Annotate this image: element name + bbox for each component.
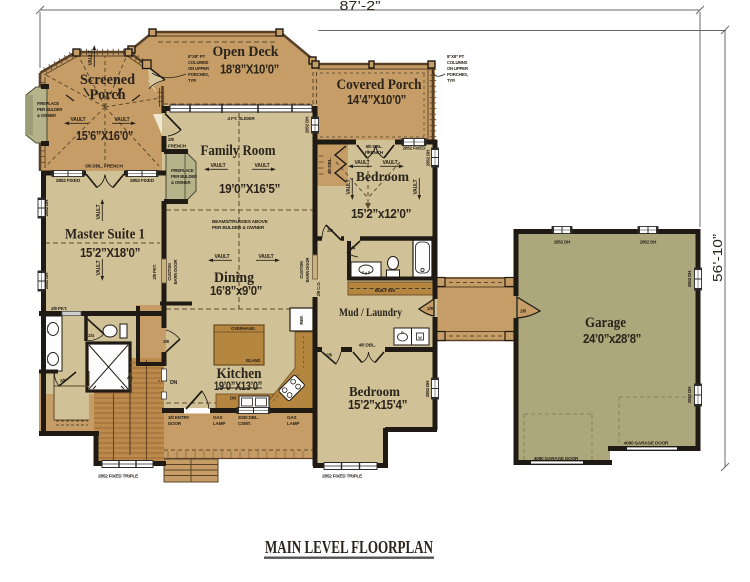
svg-text:DN: DN <box>230 396 236 401</box>
svg-text:GAS: GAS <box>213 415 222 420</box>
svg-text:Bedroom: Bedroom <box>356 170 409 185</box>
svg-text:3/0 ENTRY: 3/0 ENTRY <box>168 415 189 420</box>
svg-text:2852 FIXED: 2852 FIXED <box>403 146 426 151</box>
svg-text:COLUMNS: COLUMNS <box>447 60 468 65</box>
svg-text:ON UPPER: ON UPPER <box>188 66 210 71</box>
svg-text:PORCHES,: PORCHES, <box>447 72 468 77</box>
svg-text:VAULT: VAULT <box>383 160 398 166</box>
svg-text:2030 DBL.: 2030 DBL. <box>238 415 258 420</box>
svg-text:BARN DOOR: BARN DOOR <box>305 257 310 283</box>
svg-text:2/8: 2/8 <box>327 228 333 233</box>
svg-text:VAULT: VAULT <box>115 117 130 123</box>
svg-text:PER BULDER & OWNER: PER BULDER & OWNER <box>212 225 265 231</box>
svg-text:2/8: 2/8 <box>520 309 526 314</box>
svg-text:Mud / Laundry: Mud / Laundry <box>339 307 402 319</box>
svg-text:2852 DH: 2852 DH <box>44 273 49 289</box>
svg-text:Family Room: Family Room <box>201 143 276 159</box>
svg-text:& OWNER: & OWNER <box>171 180 191 185</box>
svg-text:BUILT INS: BUILT INS <box>375 288 395 293</box>
svg-text:BEAMS/TRUSSES ABOVE: BEAMS/TRUSSES ABOVE <box>212 219 269 225</box>
svg-text:2/8: 2/8 <box>168 137 174 142</box>
svg-text:PORCHES,: PORCHES, <box>188 72 209 77</box>
svg-text:2852 DH: 2852 DH <box>687 387 692 403</box>
svg-text:BARN DOOR: BARN DOOR <box>173 259 178 285</box>
svg-text:VAULT: VAULT <box>88 50 94 65</box>
svg-text:2/8: 2/8 <box>163 339 169 344</box>
svg-text:LAMP: LAMP <box>213 421 225 426</box>
svg-text:2852 FIXED TRIPLE: 2852 FIXED TRIPLE <box>98 474 138 479</box>
svg-text:GAS: GAS <box>287 415 296 420</box>
svg-text:2852 DH: 2852 DH <box>640 240 656 245</box>
svg-text:8”X8” PT: 8”X8” PT <box>447 54 465 59</box>
svg-text:14’4”X10’0”: 14’4”X10’0” <box>347 93 406 107</box>
svg-text:2852 DH: 2852 DH <box>44 200 49 216</box>
svg-text:VAULT: VAULT <box>413 179 419 194</box>
svg-text:Covered Porch: Covered Porch <box>337 77 423 93</box>
svg-text:ISLAND: ISLAND <box>246 358 261 363</box>
svg-text:5/0 DBL. FRENCH: 5/0 DBL. FRENCH <box>85 164 123 170</box>
svg-text:87’-2”: 87’-2” <box>340 0 381 13</box>
svg-text:VAULT: VAULT <box>259 254 274 260</box>
svg-text:2852 DH: 2852 DH <box>425 381 430 397</box>
svg-text:4080 GARAGE DOOR: 4080 GARAGE DOOR <box>534 456 579 461</box>
svg-text:CSMT.: CSMT. <box>238 421 251 426</box>
svg-text:4 FT. SLIDER: 4 FT. SLIDER <box>227 116 255 122</box>
svg-text:VAULT: VAULT <box>255 163 270 169</box>
svg-text:VAULT: VAULT <box>215 254 230 260</box>
svg-text:2/8 PKT.: 2/8 PKT. <box>51 306 67 311</box>
svg-text:LAMP: LAMP <box>287 421 299 426</box>
svg-text:2852 FIXED TRIPLE: 2852 FIXED TRIPLE <box>322 474 362 479</box>
svg-text:2852 FIXED: 2852 FIXED <box>130 178 155 184</box>
svg-text:18’8”X10’0”: 18’8”X10’0” <box>220 63 279 77</box>
svg-text:DN: DN <box>170 380 178 386</box>
svg-text:Screened: Screened <box>80 72 136 88</box>
svg-text:TYP.: TYP. <box>188 78 196 83</box>
svg-text:VAULT: VAULT <box>355 160 370 166</box>
svg-text:15’2”X18’0”: 15’2”X18’0” <box>80 246 140 260</box>
svg-text:TYP.: TYP. <box>447 78 455 83</box>
svg-text:4/0 DBL.: 4/0 DBL. <box>327 158 332 175</box>
svg-text:5/0 DBL.: 5/0 DBL. <box>366 144 383 149</box>
svg-text:2852 DH: 2852 DH <box>426 150 431 166</box>
svg-text:VAULT: VAULT <box>96 204 102 219</box>
svg-text:Garage: Garage <box>585 315 626 331</box>
svg-text:16’8”x9’0”: 16’8”x9’0” <box>210 284 262 298</box>
svg-text:FIREPLACE: FIREPLACE <box>171 168 194 173</box>
svg-text:8”X8” PT: 8”X8” PT <box>188 54 206 59</box>
svg-text:2852 DH: 2852 DH <box>687 271 692 287</box>
svg-text:VAULT: VAULT <box>346 179 352 194</box>
svg-text:2852 DH: 2852 DH <box>305 117 310 133</box>
svg-text:PER BULDER: PER BULDER <box>37 107 62 112</box>
svg-text:REF.: REF. <box>299 315 304 324</box>
svg-text:Master Suite 1: Master Suite 1 <box>65 227 145 243</box>
svg-text:COLUMNS: COLUMNS <box>188 60 209 65</box>
svg-text:19’0”X16’5”: 19’0”X16’5” <box>219 182 280 196</box>
svg-text:FRENCH: FRENCH <box>168 144 187 149</box>
svg-text:& OWNER: & OWNER <box>37 113 56 118</box>
svg-text:2/8: 2/8 <box>427 306 433 311</box>
svg-text:Open Deck: Open Deck <box>213 44 280 60</box>
svg-text:OVERHANG: OVERHANG <box>231 326 256 331</box>
svg-text:19’0”X13’0”: 19’0”X13’0” <box>214 379 262 393</box>
svg-text:CUSTOM: CUSTOM <box>167 263 172 281</box>
svg-text:MAIN LEVEL FLOORPLAN: MAIN LEVEL FLOORPLAN <box>265 537 433 557</box>
svg-text:2/4: 2/4 <box>88 333 94 338</box>
svg-text:VAULT: VAULT <box>96 260 102 275</box>
svg-text:4/0 DBL.: 4/0 DBL. <box>359 343 376 348</box>
svg-text:2/8 PKT.: 2/8 PKT. <box>152 264 157 279</box>
svg-text:2/4: 2/4 <box>349 246 355 251</box>
svg-text:PER BULDER: PER BULDER <box>171 174 198 179</box>
svg-text:56’-10”: 56’-10” <box>710 234 725 282</box>
svg-text:2/8: 2/8 <box>326 353 332 358</box>
svg-text:VAULT: VAULT <box>71 117 86 123</box>
svg-text:ON UPPER: ON UPPER <box>447 66 469 71</box>
svg-text:FIREPLACE: FIREPLACE <box>37 101 59 106</box>
svg-text:Porch: Porch <box>90 87 127 103</box>
svg-text:CUSTOM: CUSTOM <box>299 261 304 279</box>
svg-text:2/8 C.O.: 2/8 C.O. <box>316 282 321 297</box>
svg-text:4080 GARAGE DOOR: 4080 GARAGE DOOR <box>624 441 669 446</box>
svg-text:DOOR: DOOR <box>168 421 182 426</box>
svg-text:2852 FIXED: 2852 FIXED <box>56 178 81 184</box>
svg-text:15’6”X16’0”: 15’6”X16’0” <box>76 129 133 143</box>
svg-text:15’2”x12’0”: 15’2”x12’0” <box>351 207 411 221</box>
svg-text:2/8: 2/8 <box>60 378 66 383</box>
svg-text:FRENCH: FRENCH <box>365 150 384 155</box>
svg-text:VAULT: VAULT <box>211 163 226 169</box>
svg-text:15’2”x15’4”: 15’2”x15’4” <box>348 398 407 412</box>
svg-text:2852 DH: 2852 DH <box>554 240 570 245</box>
svg-text:24’0”x28’8”: 24’0”x28’8” <box>583 332 641 346</box>
